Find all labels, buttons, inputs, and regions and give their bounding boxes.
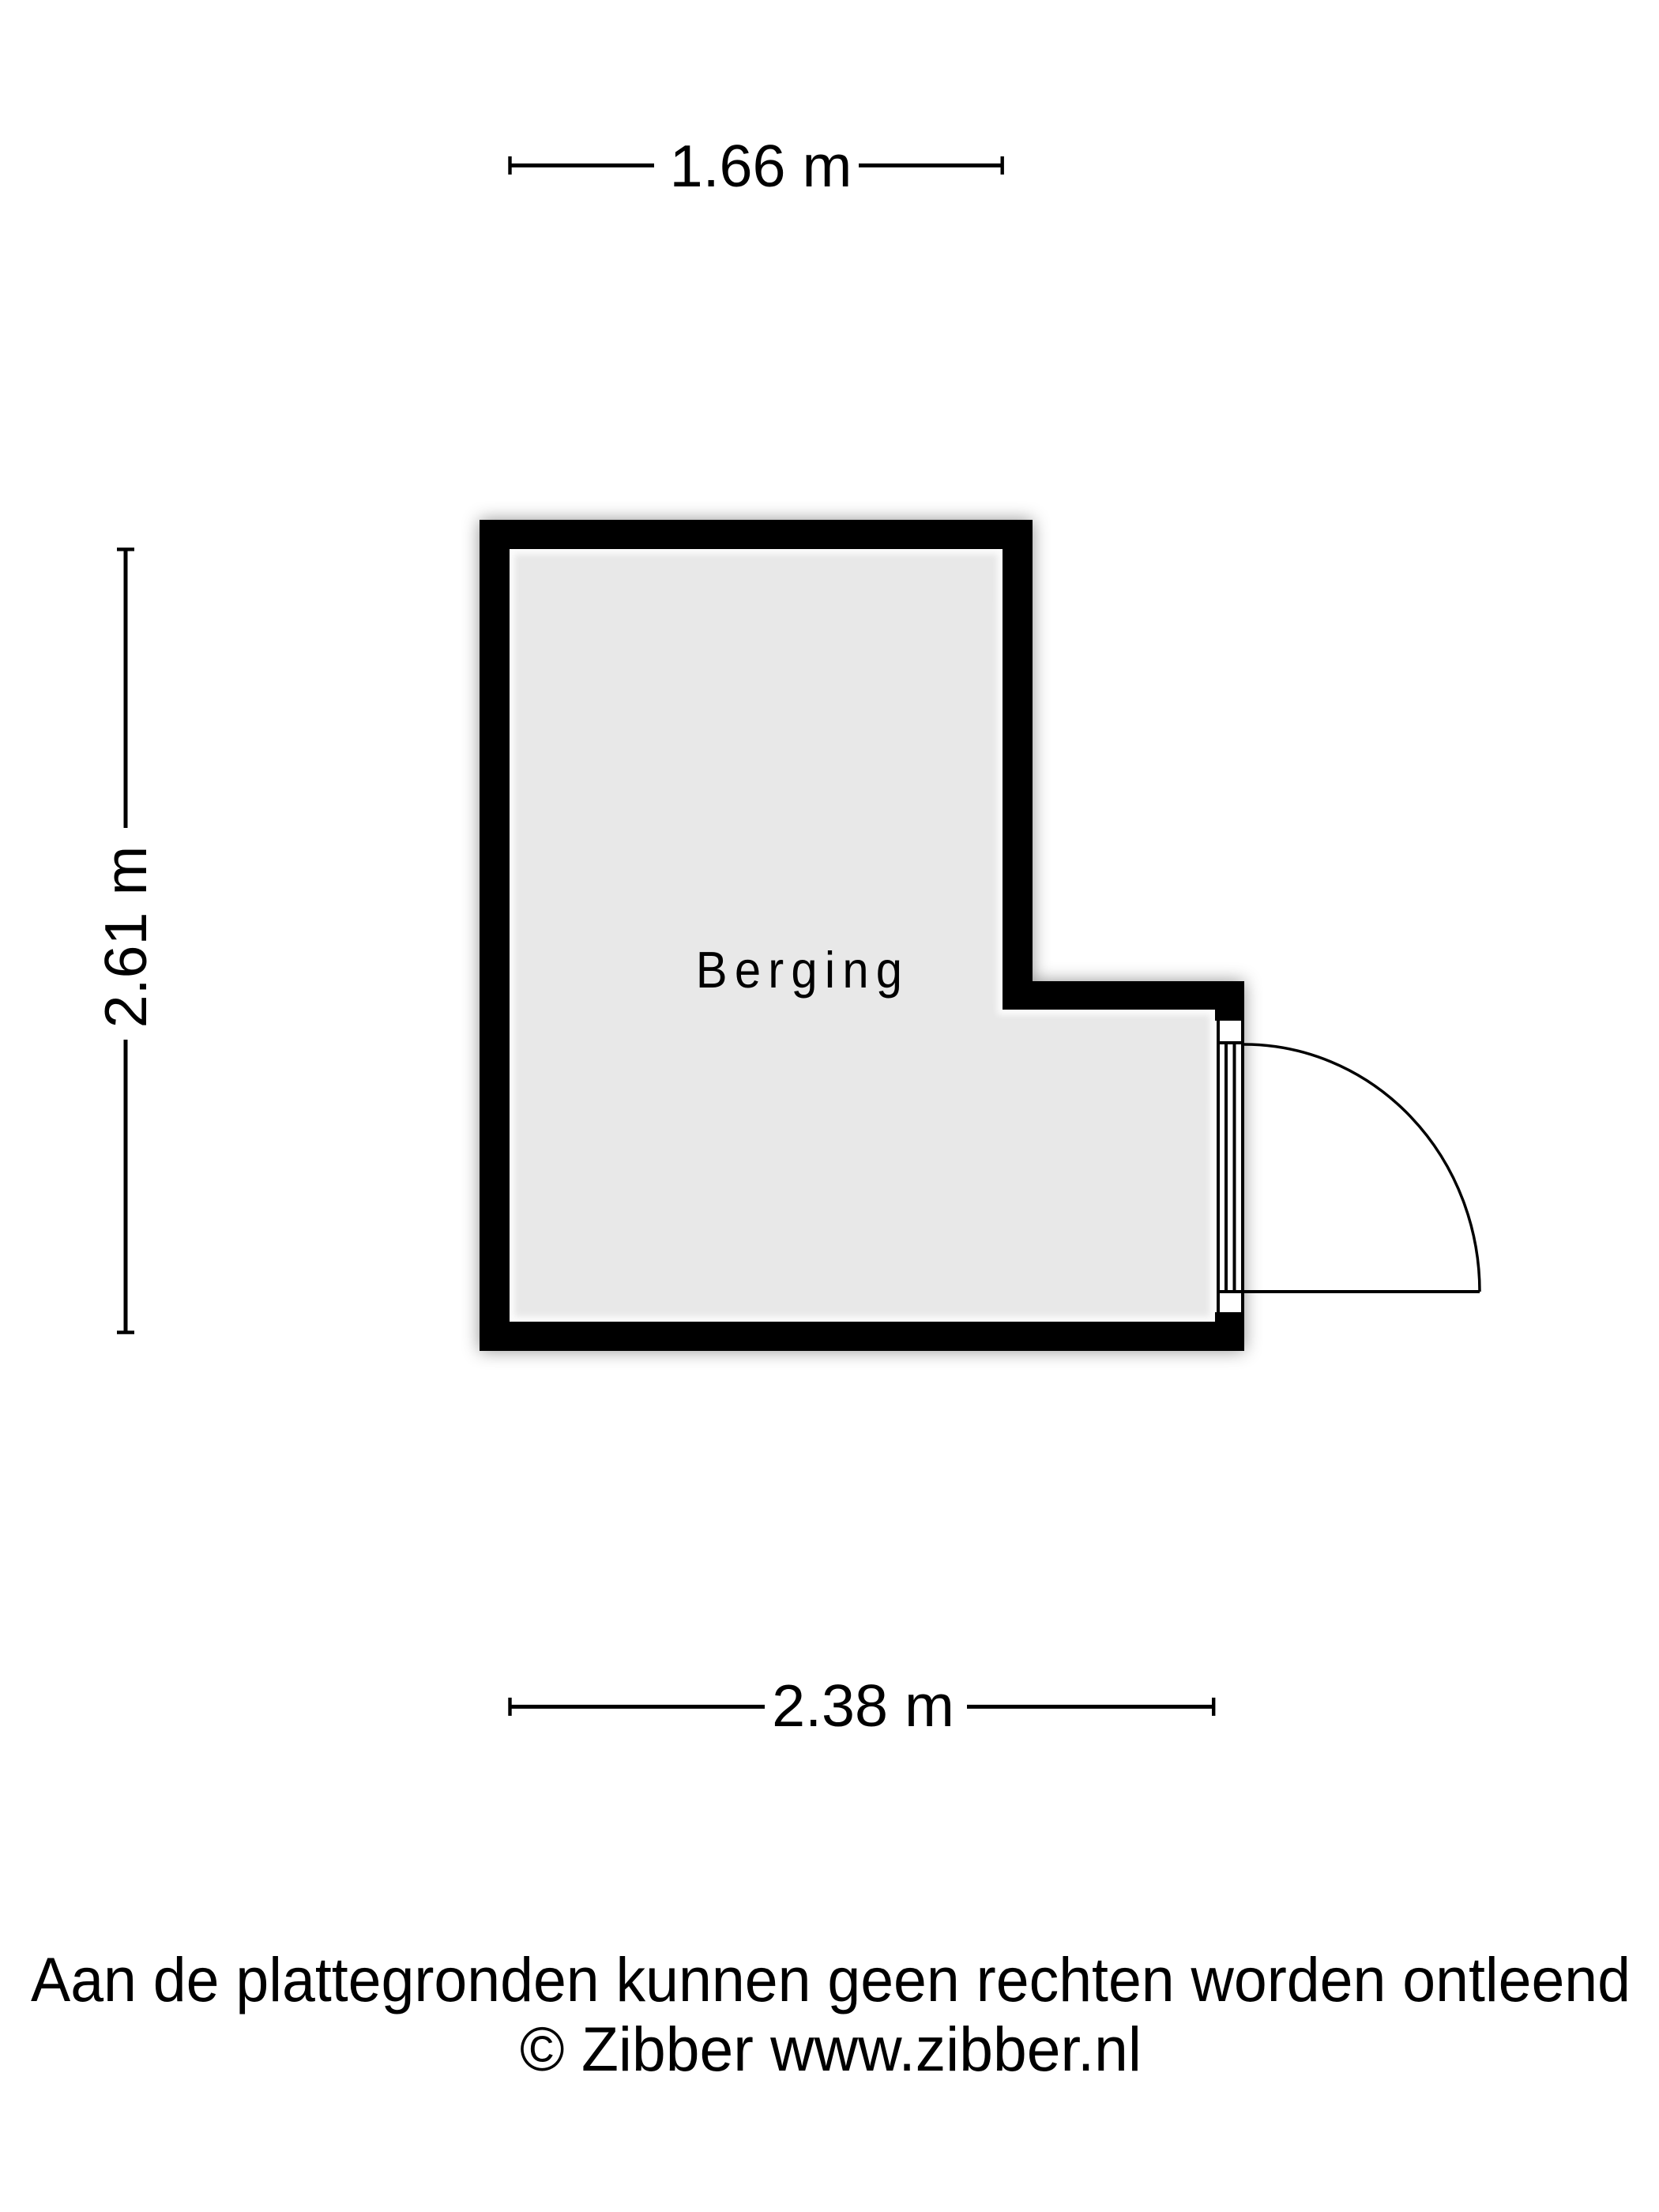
- svg-text:1.66 m: 1.66 m: [670, 133, 852, 199]
- svg-text:Aan de plattegronden kunnen ge: Aan de plattegronden kunnen geen rechten…: [31, 1944, 1631, 2014]
- svg-text:2.61 m: 2.61 m: [92, 846, 159, 1029]
- svg-text:2.38 m: 2.38 m: [772, 1672, 954, 1739]
- svg-text:Berging: Berging: [696, 942, 909, 999]
- svg-text:© Zibber www.zibber.nl: © Zibber www.zibber.nl: [520, 2014, 1142, 2084]
